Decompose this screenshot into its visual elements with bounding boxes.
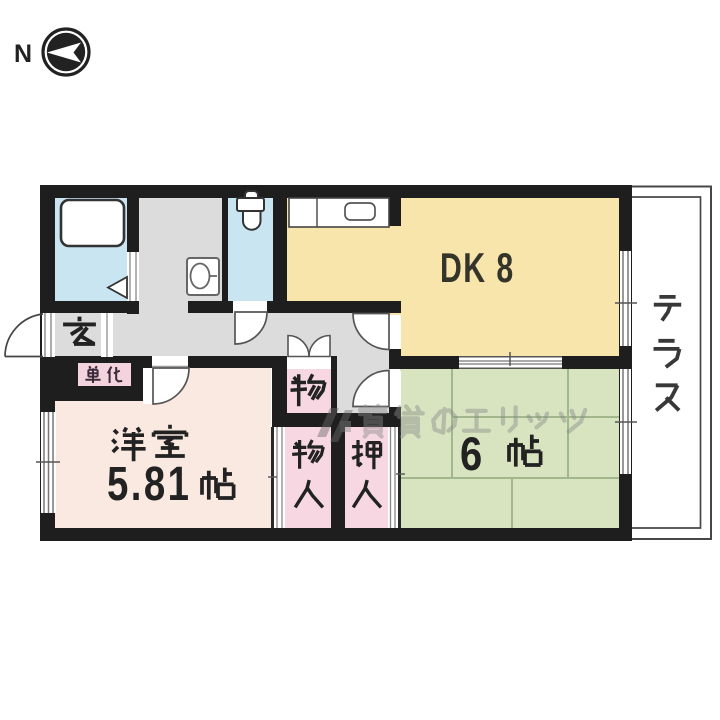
svg-text:N: N (14, 40, 32, 68)
svg-text:6: 6 (460, 429, 482, 481)
svg-text:DK 8: DK 8 (440, 244, 515, 291)
svg-text:5.81: 5.81 (107, 458, 191, 511)
